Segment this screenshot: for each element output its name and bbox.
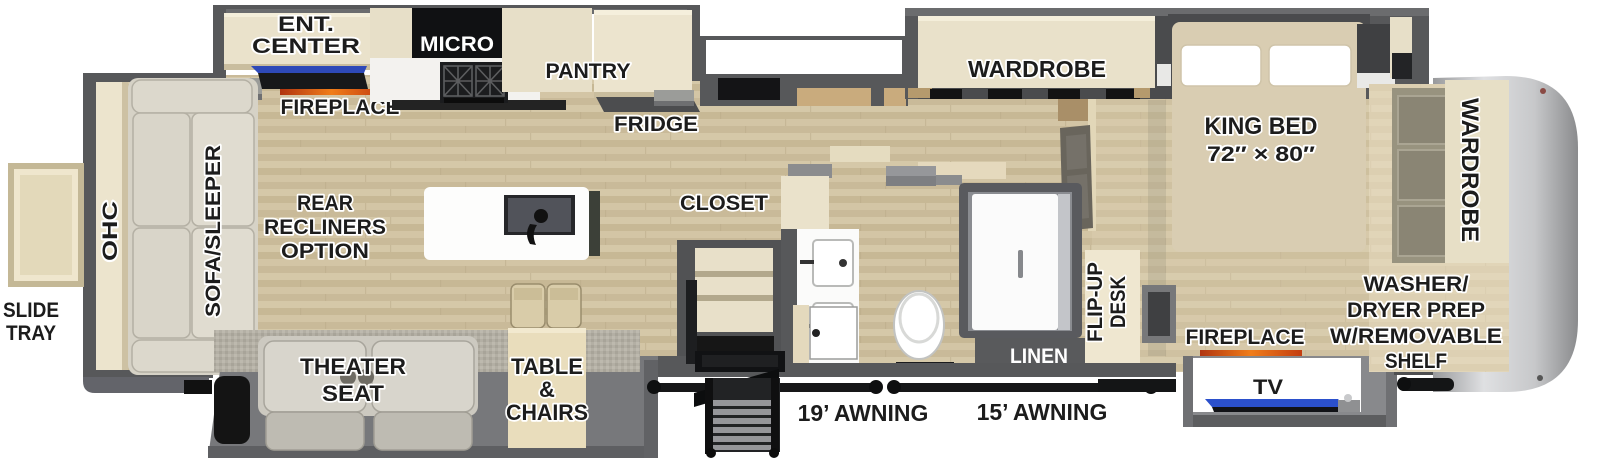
svg-text:TABLE: TABLE [511,354,583,379]
svg-text:SHELF: SHELF [1385,350,1447,373]
svg-text:19’ AWNING: 19’ AWNING [798,400,929,426]
svg-text:FLIP-UP: FLIP-UP [1084,262,1107,342]
svg-text:RECLINERS: RECLINERS [264,216,386,239]
svg-text:72″ × 80″: 72″ × 80″ [1207,143,1315,166]
svg-text:DESK: DESK [1107,276,1130,328]
svg-text:WASHER/: WASHER/ [1364,273,1469,296]
svg-text:SEAT: SEAT [322,381,385,406]
svg-text:OPTION: OPTION [281,240,369,263]
svg-text:FRIDGE: FRIDGE [614,113,698,136]
svg-text:TRAY: TRAY [6,322,56,345]
svg-text:KING BED: KING BED [1205,113,1318,140]
svg-text:15’ AWNING: 15’ AWNING [977,399,1108,425]
svg-text:ENT.: ENT. [278,13,334,36]
svg-text:SOFA/SLEEPER: SOFA/SLEEPER [202,145,225,317]
svg-text:CENTER: CENTER [252,35,360,58]
svg-text:PANTRY: PANTRY [546,60,631,83]
svg-text:W/REMOVABLE: W/REMOVABLE [1330,325,1502,348]
svg-text:CLOSET: CLOSET [680,192,768,215]
svg-text:DRYER PREP: DRYER PREP [1347,299,1485,322]
svg-text:CHAIRS: CHAIRS [506,400,588,425]
svg-text:WARDROBE: WARDROBE [968,56,1106,82]
svg-text:THEATER: THEATER [300,354,406,379]
svg-text:MICRO: MICRO [420,33,494,56]
svg-text:OHC: OHC [99,201,122,261]
svg-text:REAR: REAR [297,192,353,215]
svg-text:FIREPLACE: FIREPLACE [1186,326,1305,349]
svg-text:&: & [539,377,555,402]
svg-text:SLIDE: SLIDE [3,299,59,322]
svg-text:TV: TV [1253,376,1283,399]
svg-text:WARDROBE: WARDROBE [1456,98,1483,242]
